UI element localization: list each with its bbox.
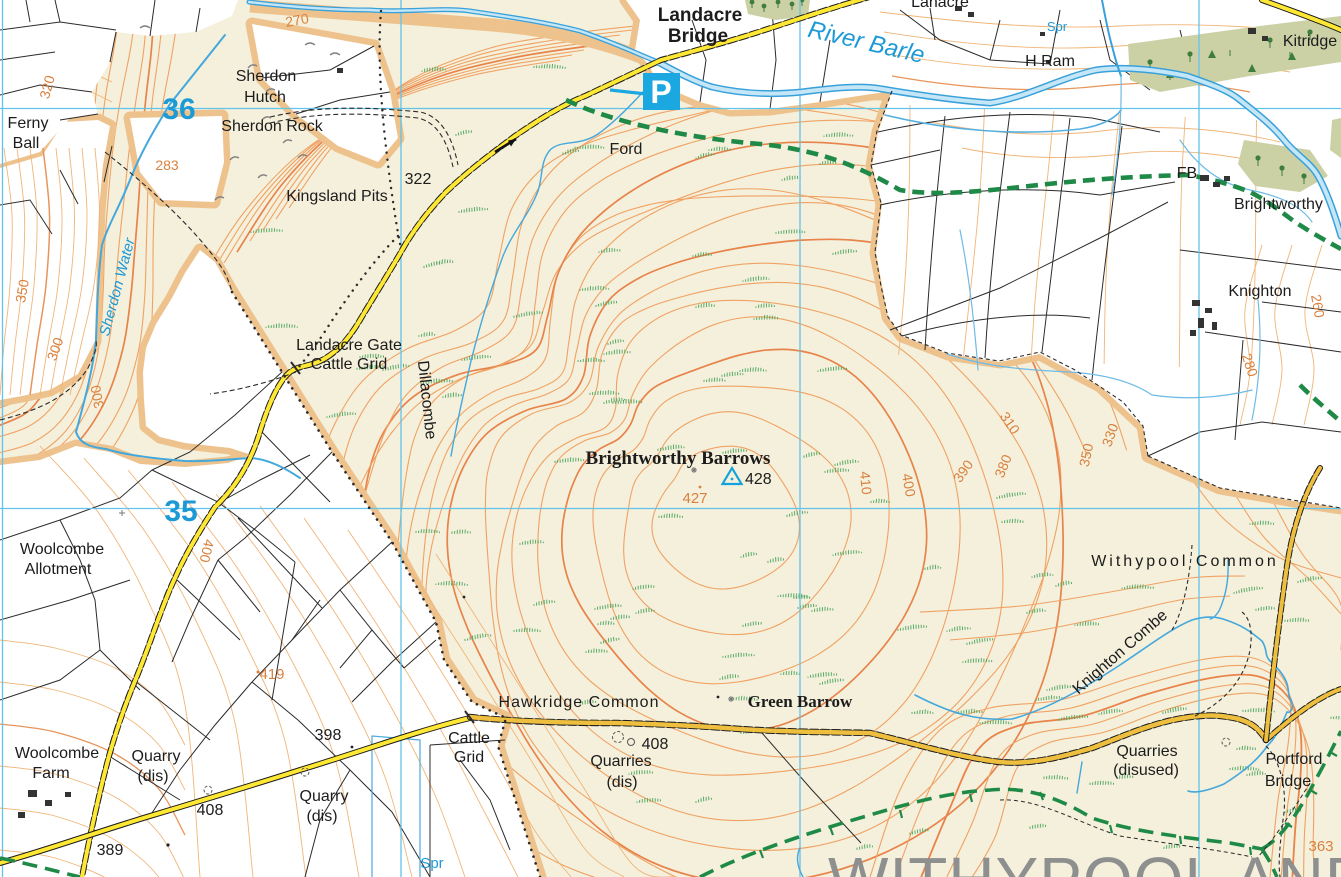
- svg-text:Spr: Spr: [420, 855, 443, 872]
- svg-text:Hutch: Hutch: [244, 89, 286, 106]
- svg-text:Landacre Gate: Landacre Gate: [296, 337, 402, 354]
- svg-text:Sherdon Rock: Sherdon Rock: [221, 118, 323, 135]
- svg-text:Quarries: Quarries: [1116, 743, 1177, 760]
- svg-text:Spr: Spr: [1047, 19, 1068, 34]
- svg-text:Green Barrow: Green Barrow: [748, 692, 853, 711]
- svg-text:408: 408: [197, 802, 224, 819]
- svg-text:WITHYPOOL AND: WITHYPOOL AND: [828, 844, 1341, 877]
- svg-text:36: 36: [162, 93, 195, 126]
- svg-text:(dis): (dis): [606, 774, 637, 791]
- svg-text:Ford: Ford: [610, 141, 643, 158]
- svg-text:408: 408: [642, 736, 669, 753]
- svg-text:283: 283: [155, 157, 179, 173]
- svg-text:FB: FB: [1177, 165, 1197, 182]
- svg-text:322: 322: [405, 171, 432, 188]
- svg-text:P: P: [650, 74, 671, 110]
- svg-text:Farm: Farm: [32, 765, 69, 782]
- svg-text:Portford: Portford: [1266, 751, 1323, 768]
- svg-text:Grid: Grid: [454, 749, 484, 766]
- svg-text:389: 389: [97, 842, 124, 859]
- svg-text:Ball: Ball: [13, 135, 40, 152]
- svg-text:Kingsland Pits: Kingsland Pits: [286, 188, 387, 205]
- svg-text:Landacre: Landacre: [658, 5, 742, 26]
- svg-text:410: 410: [857, 471, 875, 496]
- svg-text:(disused): (disused): [1113, 762, 1179, 779]
- svg-text:Bridge: Bridge: [668, 26, 728, 47]
- svg-text:H Ram: H Ram: [1025, 53, 1075, 70]
- svg-text:Woolcombe: Woolcombe: [15, 745, 99, 762]
- svg-text:Sherdon: Sherdon: [236, 68, 297, 85]
- svg-text:35: 35: [164, 495, 197, 528]
- svg-text:Knighton: Knighton: [1228, 283, 1291, 300]
- svg-text:Allotment: Allotment: [25, 561, 92, 578]
- svg-text:Cattle: Cattle: [448, 730, 490, 747]
- svg-text:Lanacre: Lanacre: [911, 0, 969, 11]
- svg-text:Brightworthy: Brightworthy: [1234, 196, 1323, 213]
- svg-text:428: 428: [745, 471, 772, 488]
- svg-text:Woolcombe: Woolcombe: [20, 541, 104, 558]
- svg-text:Brightworthy Barrows: Brightworthy Barrows: [586, 448, 771, 469]
- svg-text:419: 419: [259, 666, 284, 683]
- svg-text:Kitridge: Kitridge: [1283, 33, 1337, 50]
- svg-text:Withypool Common: Withypool Common: [1091, 553, 1279, 570]
- svg-text:Cattle Grid: Cattle Grid: [311, 356, 387, 373]
- svg-text:Quarries: Quarries: [590, 753, 651, 770]
- svg-text:Bridge: Bridge: [1265, 773, 1311, 790]
- svg-text:(dis): (dis): [137, 768, 168, 785]
- svg-text:Quarry: Quarry: [132, 748, 181, 765]
- svg-text:(dis): (dis): [306, 808, 337, 825]
- svg-text:427: 427: [682, 490, 707, 507]
- svg-text:Ferny: Ferny: [8, 115, 49, 132]
- svg-text:398: 398: [315, 727, 342, 744]
- svg-text:Hawkridge Common: Hawkridge Common: [499, 694, 660, 711]
- svg-text:Quarry: Quarry: [300, 788, 349, 805]
